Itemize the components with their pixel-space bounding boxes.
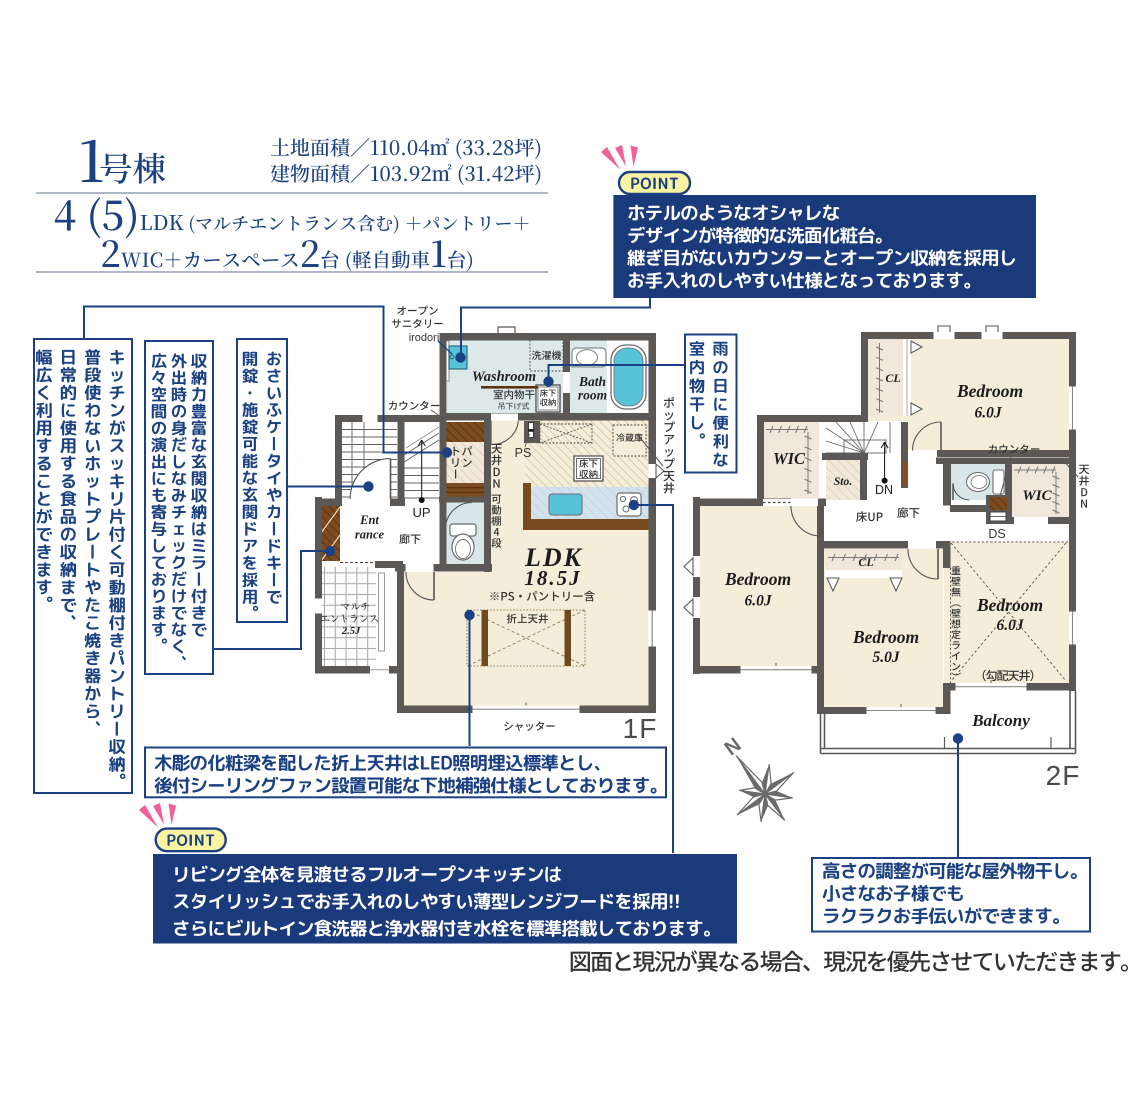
svg-text:5.0J: 5.0J	[872, 649, 900, 666]
svg-text:WIC: WIC	[1022, 488, 1052, 504]
svg-text:Sto.: Sto.	[834, 476, 852, 488]
svg-text:18.5J: 18.5J	[524, 566, 581, 590]
svg-text:DS: DS	[988, 527, 1005, 541]
svg-text:6.0J: 6.0J	[744, 593, 772, 610]
svg-text:irodori: irodori	[409, 332, 440, 344]
svg-text:Bedroom: Bedroom	[852, 627, 919, 647]
svg-text:Bedroom: Bedroom	[724, 569, 791, 589]
svg-text:Bedroom: Bedroom	[976, 595, 1043, 615]
svg-text:CL: CL	[858, 555, 873, 569]
svg-text:6.0J: 6.0J	[974, 405, 1002, 422]
svg-text:rance: rance	[355, 528, 385, 542]
svg-text:Balcony: Balcony	[971, 711, 1030, 730]
svg-text:2F: 2F	[1046, 760, 1081, 791]
svg-text:CL: CL	[885, 371, 900, 385]
svg-text:Ent: Ent	[359, 513, 379, 527]
svg-text:6.0J: 6.0J	[996, 617, 1024, 634]
svg-text:2.5J: 2.5J	[341, 626, 361, 637]
svg-text:1F: 1F	[623, 713, 658, 744]
svg-text:PS: PS	[515, 446, 532, 460]
svg-text:UP: UP	[412, 505, 430, 520]
svg-text:room: room	[578, 388, 607, 403]
svg-text:WIC: WIC	[773, 449, 806, 468]
svg-text:DN: DN	[875, 483, 893, 497]
svg-text:Bedroom: Bedroom	[956, 381, 1023, 401]
svg-text:N: N	[721, 734, 746, 760]
svg-text:Washroom: Washroom	[472, 369, 536, 385]
